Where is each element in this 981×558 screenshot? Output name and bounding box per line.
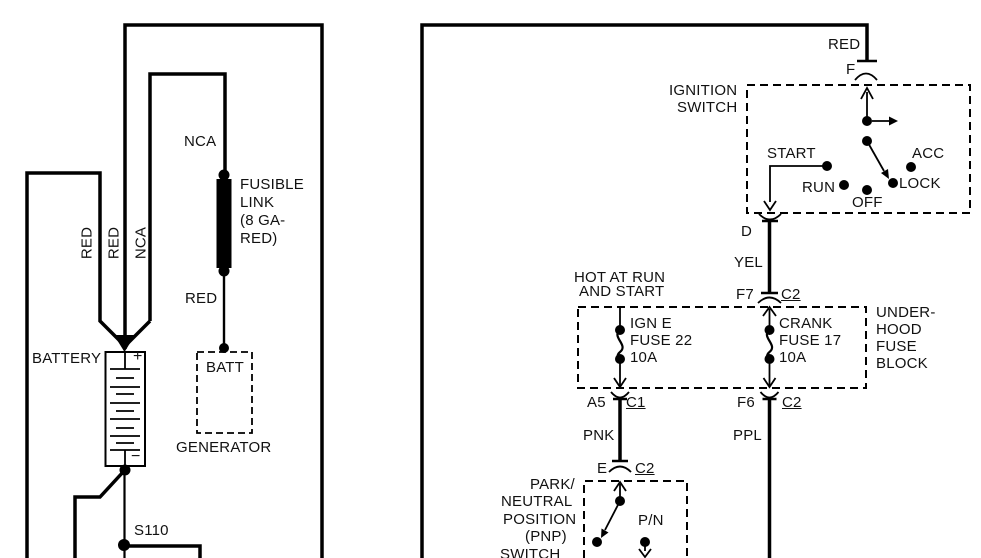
fuse-crank-label-1: CRANK xyxy=(779,316,833,331)
pnp-switch-label-2: NEUTRAL xyxy=(501,494,572,509)
fuse-ign-e-label-1: IGN E xyxy=(630,316,672,331)
contact-pn-label: P/N xyxy=(638,513,664,528)
pnp-switch-box xyxy=(584,481,687,558)
fuse-ign-e-label-2: FUSE 22 xyxy=(630,333,692,348)
fuse-ign-e-label-3: 10A xyxy=(630,350,657,365)
fuse-crank xyxy=(763,307,776,387)
battery-minus-sign: − xyxy=(131,449,141,464)
position-off-label: OFF xyxy=(852,195,883,210)
connector-c1-label: C1 xyxy=(626,395,646,410)
fusible-link-label-1: FUSIBLE xyxy=(240,177,304,192)
pnp-switch-label-3: POSITION xyxy=(503,512,576,527)
fuse-block-label-4: BLOCK xyxy=(876,356,928,371)
connector-f6-c2 xyxy=(761,392,779,399)
connector-c2-bottom-label: C2 xyxy=(635,461,655,476)
hot-at-run-label-2: AND START xyxy=(579,284,664,299)
wire-red-generator-label: RED xyxy=(185,291,217,306)
fusible-link-label-4: RED) xyxy=(240,231,277,246)
fusible-link xyxy=(217,170,232,354)
battery-plus-sign: + xyxy=(133,349,143,364)
generator-label: GENERATOR xyxy=(176,440,271,455)
connector-c2-top-label: C2 xyxy=(781,287,801,302)
connector-f7-c2 xyxy=(758,293,781,303)
terminal-f7-label: F7 xyxy=(736,287,754,302)
pnp-switch-label-1: PARK/ xyxy=(530,477,575,492)
fuse-block-label-1: UNDER- xyxy=(876,305,936,320)
ignition-switch-label-1: IGNITION xyxy=(669,83,737,98)
contact-pnp-common xyxy=(592,537,602,547)
pnp-switch-label-4: (PNP) xyxy=(525,529,567,544)
connector-f xyxy=(855,61,877,80)
terminal-e-label: E xyxy=(597,461,607,476)
contact-acc xyxy=(906,162,916,172)
wire-yel-label: YEL xyxy=(734,255,763,270)
wire-red-ignition-label: RED xyxy=(828,37,860,52)
wire-nca-2-label: NCA xyxy=(184,134,216,149)
wire-pnk-label: PNK xyxy=(583,428,614,443)
position-acc-label: ACC xyxy=(912,146,944,161)
wiring-diagram-canvas xyxy=(0,0,981,558)
position-start-label: START xyxy=(767,146,816,161)
splice-s110-label: S110 xyxy=(134,523,169,538)
fuse-block-label-3: FUSE xyxy=(876,339,917,354)
battery-label: BATTERY xyxy=(32,351,101,366)
connector-c2-mid-label: C2 xyxy=(782,395,802,410)
fuse-ign-e xyxy=(614,307,626,387)
connector-e-c2 xyxy=(609,461,631,472)
terminal-a5-label: A5 xyxy=(587,395,606,410)
splice-s110 xyxy=(118,539,130,551)
wiring-diagram: REDREDNCANCAFUSIBLELINK(8 GA-RED)REDBATT… xyxy=(0,0,981,558)
contact-run xyxy=(839,180,849,190)
connector-d xyxy=(759,214,781,221)
battery-junction-arrow xyxy=(114,335,135,352)
wire-red-1-label: RED xyxy=(80,227,95,259)
terminal-f-label: F xyxy=(846,62,855,77)
wire-ppl-label: PPL xyxy=(733,428,762,443)
battery-feed-wires xyxy=(27,25,322,558)
contact-lock xyxy=(888,178,898,188)
generator-batt-terminal-label: BATT xyxy=(206,360,244,375)
ignition-switch-label-2: SWITCH xyxy=(677,100,737,115)
fuse-crank-label-2: FUSE 17 xyxy=(779,333,841,348)
position-run-label: RUN xyxy=(802,180,835,195)
fusible-link-label-3: (8 GA- xyxy=(240,213,285,228)
fusible-link-label-2: LINK xyxy=(240,195,274,210)
pnp-switch-label-5: SWITCH xyxy=(500,547,560,558)
position-lock-label: LOCK xyxy=(899,176,941,191)
ground-branch xyxy=(75,465,200,558)
terminal-d-label: D xyxy=(741,224,752,239)
wire-red-2-label: RED xyxy=(107,227,122,259)
fuse-crank-label-3: 10A xyxy=(779,350,806,365)
wire-nca-1-label: NCA xyxy=(134,227,149,259)
terminal-f6-label: F6 xyxy=(737,395,755,410)
fuse-block-label-2: HOOD xyxy=(876,322,922,337)
